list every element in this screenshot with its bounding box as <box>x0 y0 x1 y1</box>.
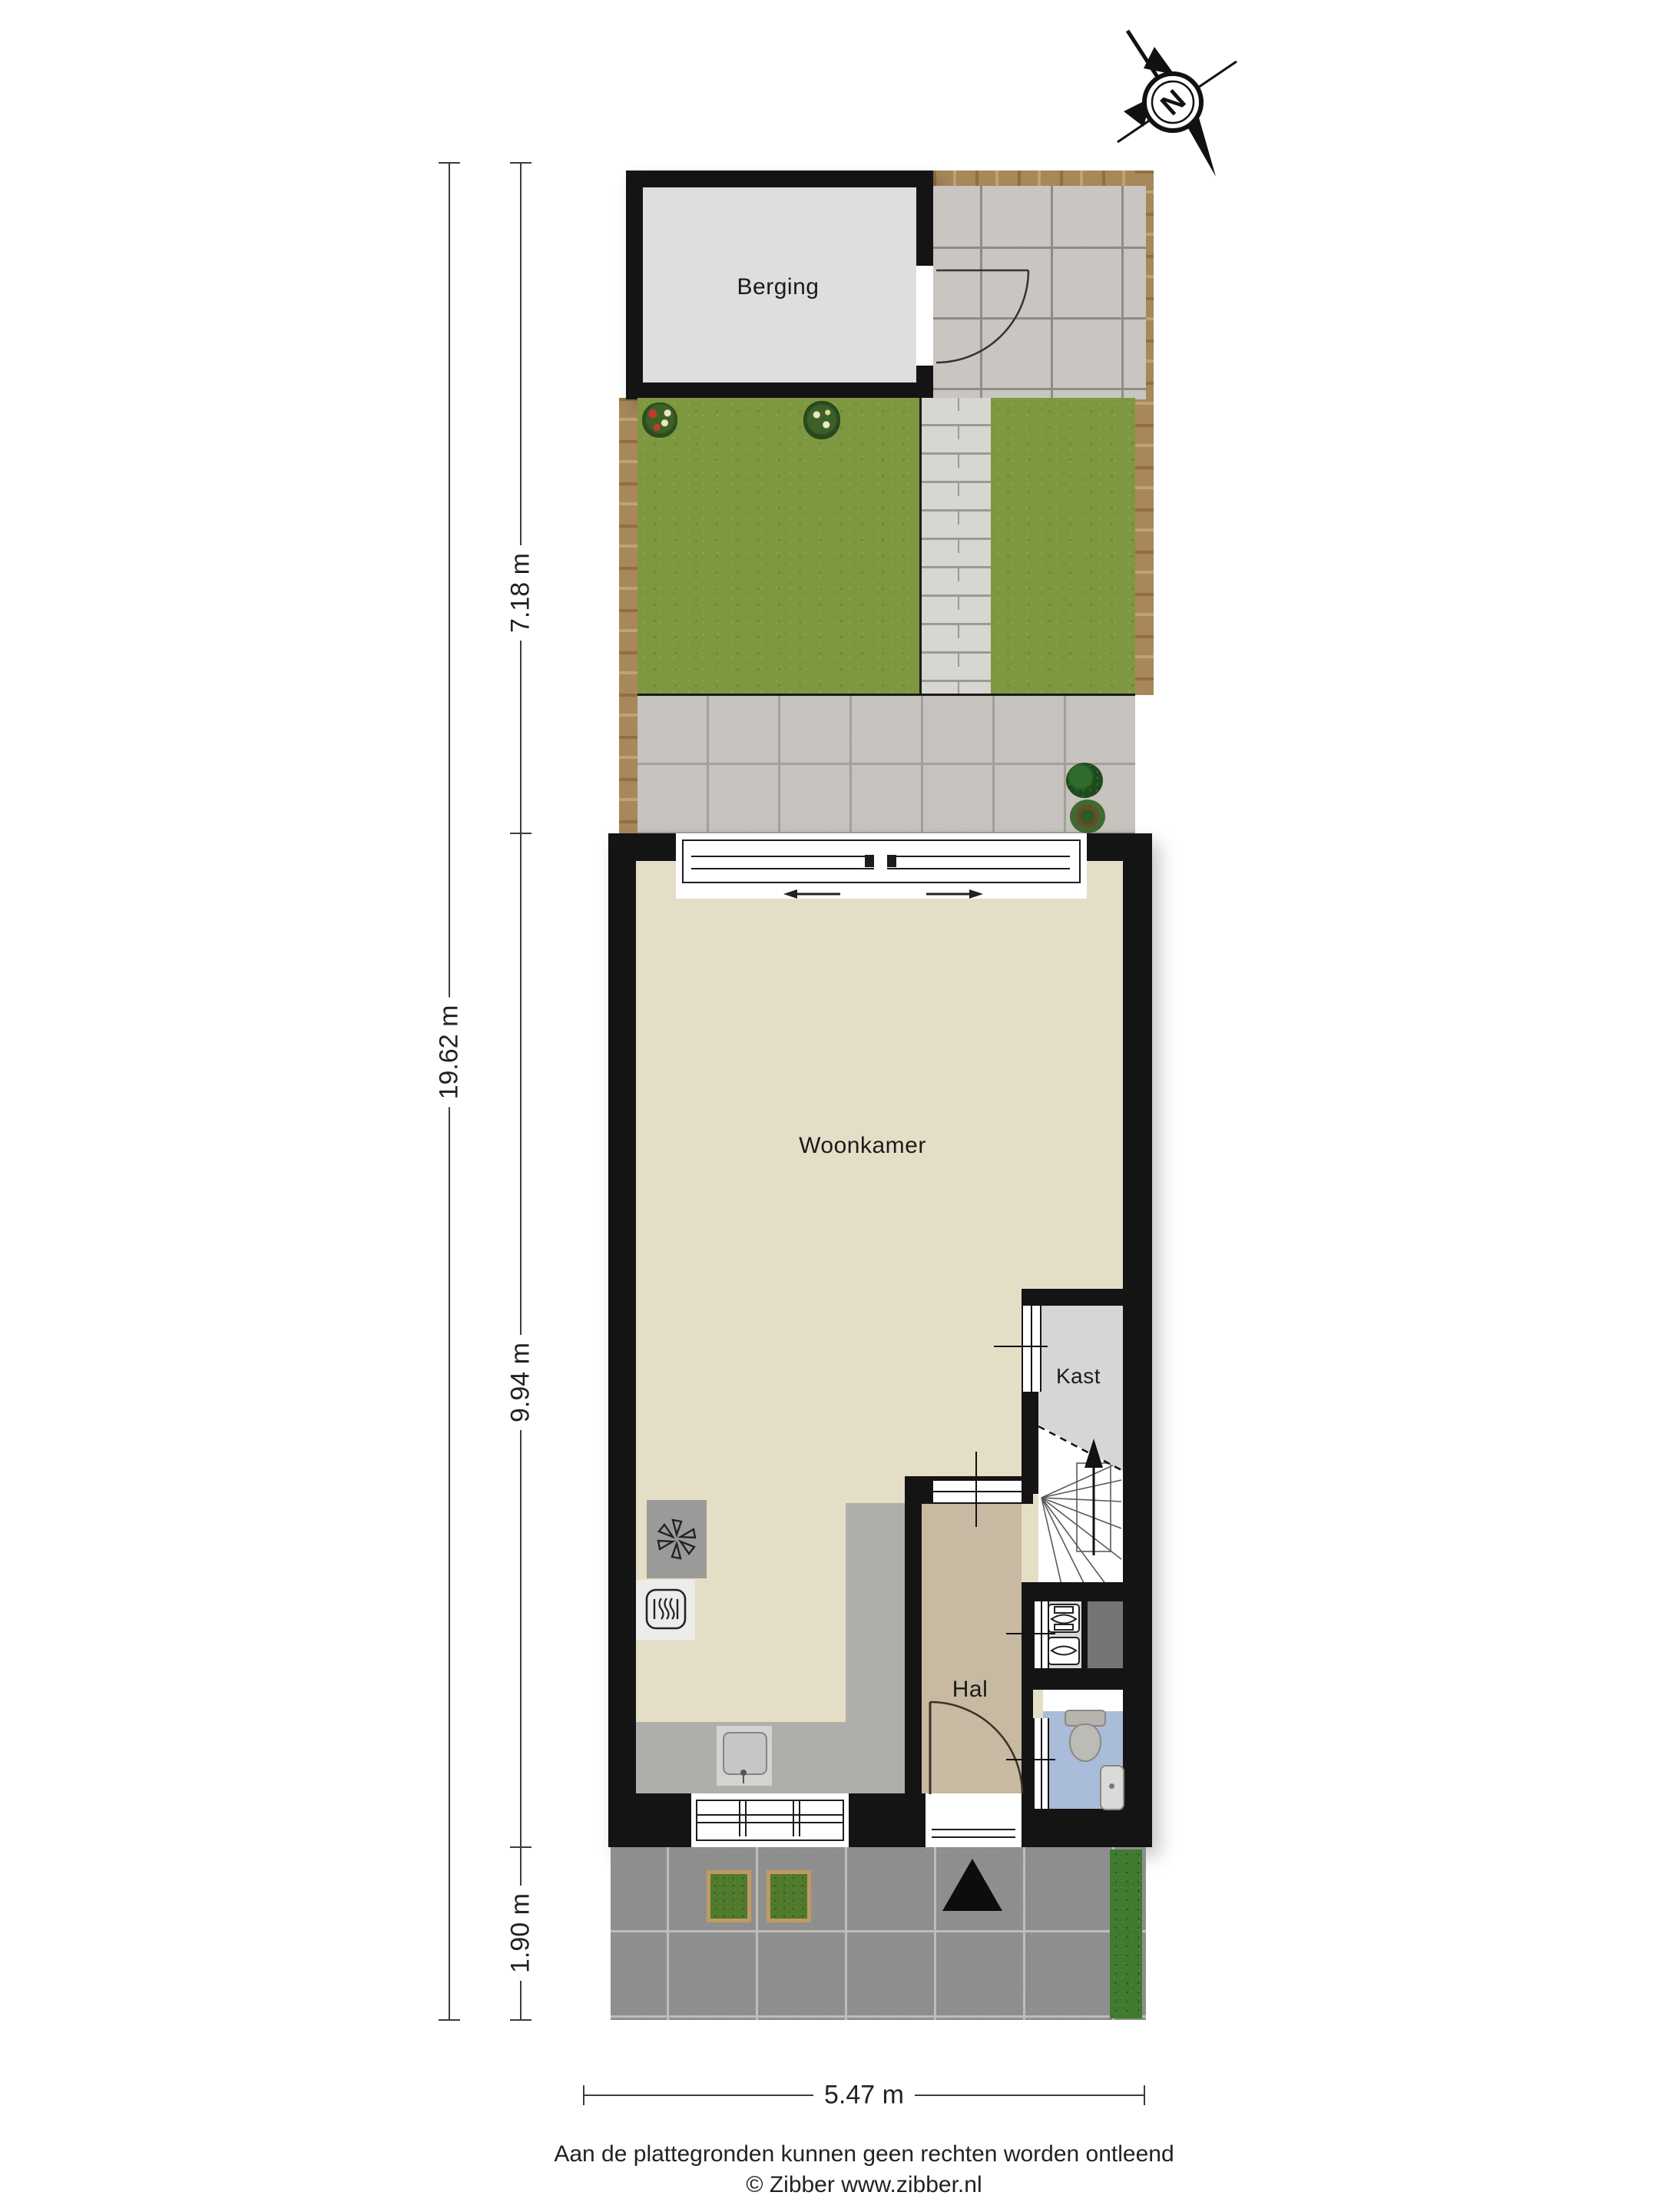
front-door-opening <box>926 1793 1022 1847</box>
utility-closet-door <box>1033 1601 1049 1668</box>
door-handle-icon <box>865 855 874 867</box>
front-window-frame <box>696 1800 844 1841</box>
dimension-line-garden-depth <box>520 163 522 833</box>
shrub-icon <box>1066 763 1103 798</box>
dimension-front-depth: 1.90 m <box>505 1886 538 1981</box>
wall-segment <box>1022 1668 1123 1690</box>
utility-door-tick <box>1006 1633 1055 1634</box>
garden-fence-top <box>933 171 1146 186</box>
tap-icon <box>743 1774 744 1783</box>
garden-brick-path <box>919 398 995 695</box>
room-label-hal: Hal <box>952 1677 988 1703</box>
boiler-units-icon <box>1048 1604 1080 1666</box>
footer-disclaimer: Aan de plattegronden kunnen geen rechten… <box>554 2141 1174 2167</box>
cooktop-icon <box>654 1516 700 1562</box>
lawn-right <box>991 398 1135 695</box>
hand-basin-icon <box>1100 1765 1124 1810</box>
flower-shrub-icon <box>803 401 840 439</box>
slide-direction-arrows-icon <box>783 887 983 901</box>
entrance-marker-icon <box>941 1857 1004 1912</box>
staircase-arrow-icon <box>1038 1425 1123 1586</box>
toilet-door <box>1033 1718 1049 1809</box>
wall-segment <box>1022 1809 1152 1847</box>
sliding-door-panel <box>691 856 874 869</box>
hedge-icon <box>1110 1849 1142 2018</box>
toilet-shelf <box>1043 1690 1123 1711</box>
lawn-left <box>637 398 919 695</box>
wall-segment <box>905 1504 922 1847</box>
planter-icon <box>767 1870 811 1922</box>
wall-segment <box>1081 1601 1088 1668</box>
garden-fence-left <box>619 398 637 833</box>
hal-door <box>933 1479 1022 1504</box>
shed-door-arc-overlay-icon <box>933 267 1033 367</box>
oven-icon <box>644 1587 688 1631</box>
dimension-total-depth: 19.62 m <box>433 998 466 1108</box>
room-label-berging: Berging <box>737 274 820 300</box>
potted-plant-icon <box>1070 800 1105 833</box>
door-handle-icon <box>887 855 896 867</box>
dimension-width: 5.47 m <box>813 2079 915 2112</box>
compass-icon: N <box>1110 19 1240 184</box>
hal-door-tick <box>975 1452 977 1527</box>
dimension-garden-depth: 7.18 m <box>505 545 538 641</box>
toilet-bowl-icon <box>1069 1724 1101 1762</box>
wall-segment <box>1022 1582 1123 1601</box>
terrace-tiles <box>637 696 1135 833</box>
shed-door-opening <box>916 266 935 366</box>
shaft-floor <box>1088 1601 1123 1668</box>
planter-icon <box>707 1870 751 1922</box>
wall-segment <box>1022 1601 1033 1671</box>
floorplan-canvas: N 19.62 m 7.18 m 9.94 m 1.90 m 5.47 m Be… <box>0 0 1659 2212</box>
kast-door <box>1022 1306 1041 1392</box>
dimension-house-depth: 9.94 m <box>505 1335 538 1430</box>
room-label-kast: Kast <box>1056 1364 1101 1389</box>
footer-credit: © Zibber www.zibber.nl <box>746 2172 982 2198</box>
front-door-arc-icon <box>927 1699 1024 1796</box>
room-label-woonkamer: Woonkamer <box>799 1133 926 1159</box>
wall-segment <box>1022 1289 1123 1306</box>
sliding-door-panel <box>887 856 1070 869</box>
front-sidewalk <box>611 1847 1146 2020</box>
toilet-door-tick <box>1006 1759 1055 1760</box>
kast-door-tick <box>994 1346 1048 1347</box>
flower-shrub-icon <box>642 402 677 438</box>
sink-icon <box>723 1732 767 1775</box>
